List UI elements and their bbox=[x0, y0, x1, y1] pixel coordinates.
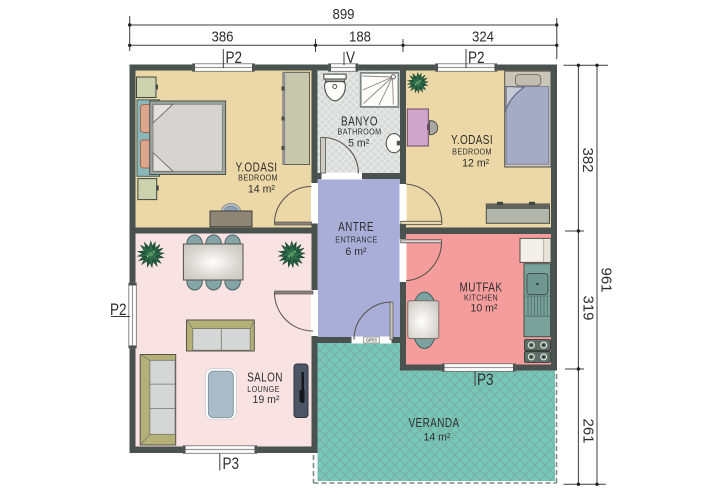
svg-text:BEDROOM: BEDROOM bbox=[452, 147, 492, 157]
svg-text:261: 261 bbox=[580, 418, 597, 443]
svg-text:P2: P2 bbox=[226, 49, 243, 68]
svg-text:P3: P3 bbox=[477, 371, 494, 390]
svg-text:14 m²: 14 m² bbox=[423, 431, 450, 443]
svg-text:386: 386 bbox=[212, 28, 234, 45]
svg-text:SALON: SALON bbox=[247, 372, 283, 385]
svg-text:P2: P2 bbox=[110, 301, 127, 320]
svg-text:19 m²: 19 m² bbox=[252, 394, 279, 406]
svg-text:12 m²: 12 m² bbox=[462, 157, 489, 169]
svg-text:899: 899 bbox=[333, 5, 355, 22]
svg-text:P2: P2 bbox=[468, 49, 485, 68]
svg-text:BATHROOM: BATHROOM bbox=[338, 127, 382, 137]
svg-text:Y.ODASI: Y.ODASI bbox=[451, 134, 493, 147]
svg-text:6 m²: 6 m² bbox=[345, 246, 366, 258]
svg-text:382: 382 bbox=[579, 147, 596, 172]
svg-text:319: 319 bbox=[580, 295, 597, 320]
svg-text:10 m²: 10 m² bbox=[470, 302, 497, 314]
svg-text:188: 188 bbox=[349, 28, 371, 45]
svg-text:ENTRANCE: ENTRANCE bbox=[335, 235, 377, 245]
svg-text:ANTRE: ANTRE bbox=[338, 221, 374, 234]
svg-text:V: V bbox=[346, 49, 355, 68]
svg-text:5 m²: 5 m² bbox=[348, 137, 369, 149]
svg-text:14 m²: 14 m² bbox=[248, 183, 275, 195]
svg-text:GIRIS: GIRIS bbox=[366, 337, 377, 342]
svg-text:VERANDA: VERANDA bbox=[408, 417, 459, 430]
svg-text:P3: P3 bbox=[223, 455, 240, 474]
svg-text:961: 961 bbox=[597, 267, 614, 292]
svg-text:324: 324 bbox=[472, 28, 494, 45]
svg-text:BEDROOM: BEDROOM bbox=[238, 173, 278, 183]
